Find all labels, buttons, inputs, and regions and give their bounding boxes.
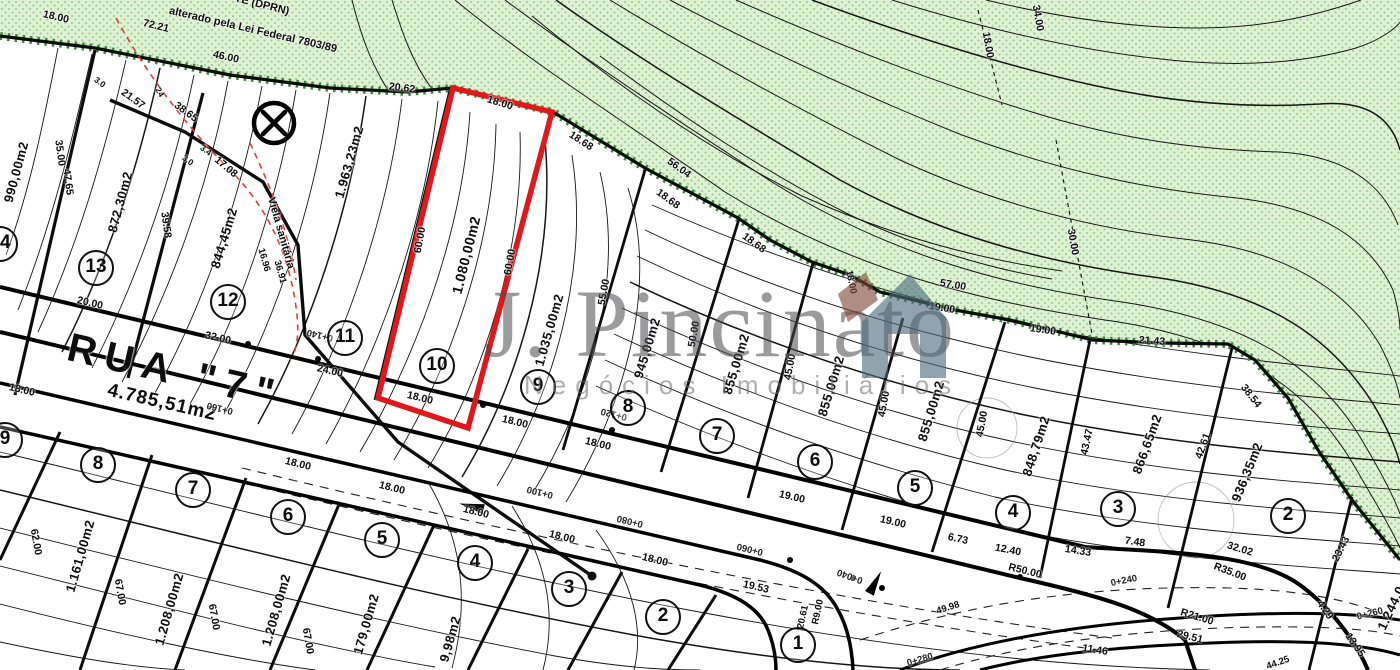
circled-x-marker [254, 103, 294, 143]
setback-dashed-lines [230, 468, 1400, 670]
auxiliary-circles [957, 398, 1234, 558]
direction-arrows [458, 499, 885, 596]
survey-plat-map: TE (DPRN)alterado pela Lei Federal 7803/… [0, 0, 1400, 670]
watermark-house-logo-icon [836, 260, 946, 378]
